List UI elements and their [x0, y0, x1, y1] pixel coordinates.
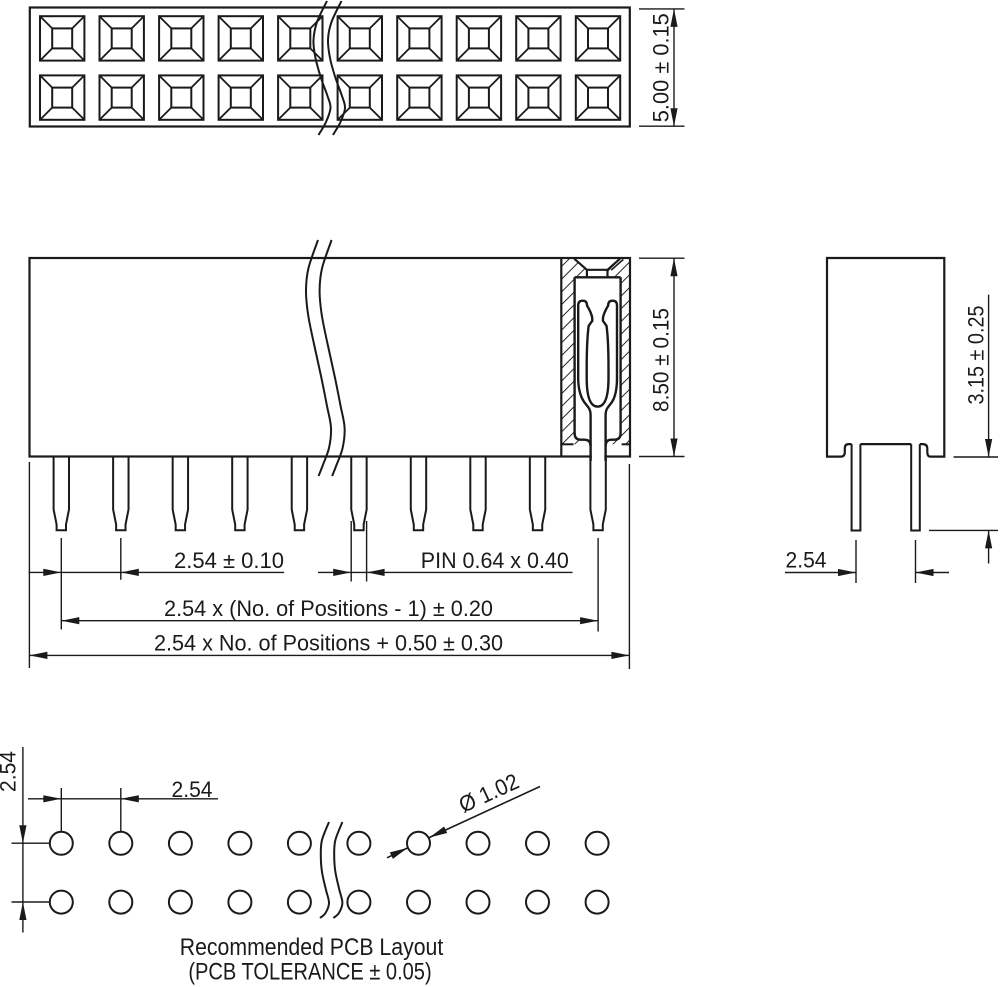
- svg-text:2.54 ± 0.10: 2.54 ± 0.10: [174, 548, 284, 573]
- svg-text:2.54 x No. of Positions + 0.50: 2.54 x No. of Positions + 0.50 ± 0.30: [154, 630, 503, 655]
- svg-text:2.54: 2.54: [172, 777, 213, 802]
- svg-text:5.00 ± 0.15: 5.00 ± 0.15: [649, 13, 674, 122]
- svg-text:2.54: 2.54: [786, 548, 827, 573]
- svg-text:3.15 ± 0.25: 3.15 ± 0.25: [964, 306, 989, 405]
- svg-text:Recommended PCB Layout: Recommended PCB Layout: [180, 934, 444, 961]
- svg-text:(PCB TOLERANCE ± 0.05): (PCB TOLERANCE ± 0.05): [188, 959, 431, 986]
- svg-text:8.50 ± 0.15: 8.50 ± 0.15: [649, 308, 674, 412]
- svg-text:PIN 0.64 x 0.40: PIN 0.64 x 0.40: [421, 548, 569, 573]
- svg-text:2.54 x (No. of Positions - 1): 2.54 x (No. of Positions - 1) ± 0.20: [164, 596, 493, 621]
- svg-text:2.54: 2.54: [0, 751, 21, 792]
